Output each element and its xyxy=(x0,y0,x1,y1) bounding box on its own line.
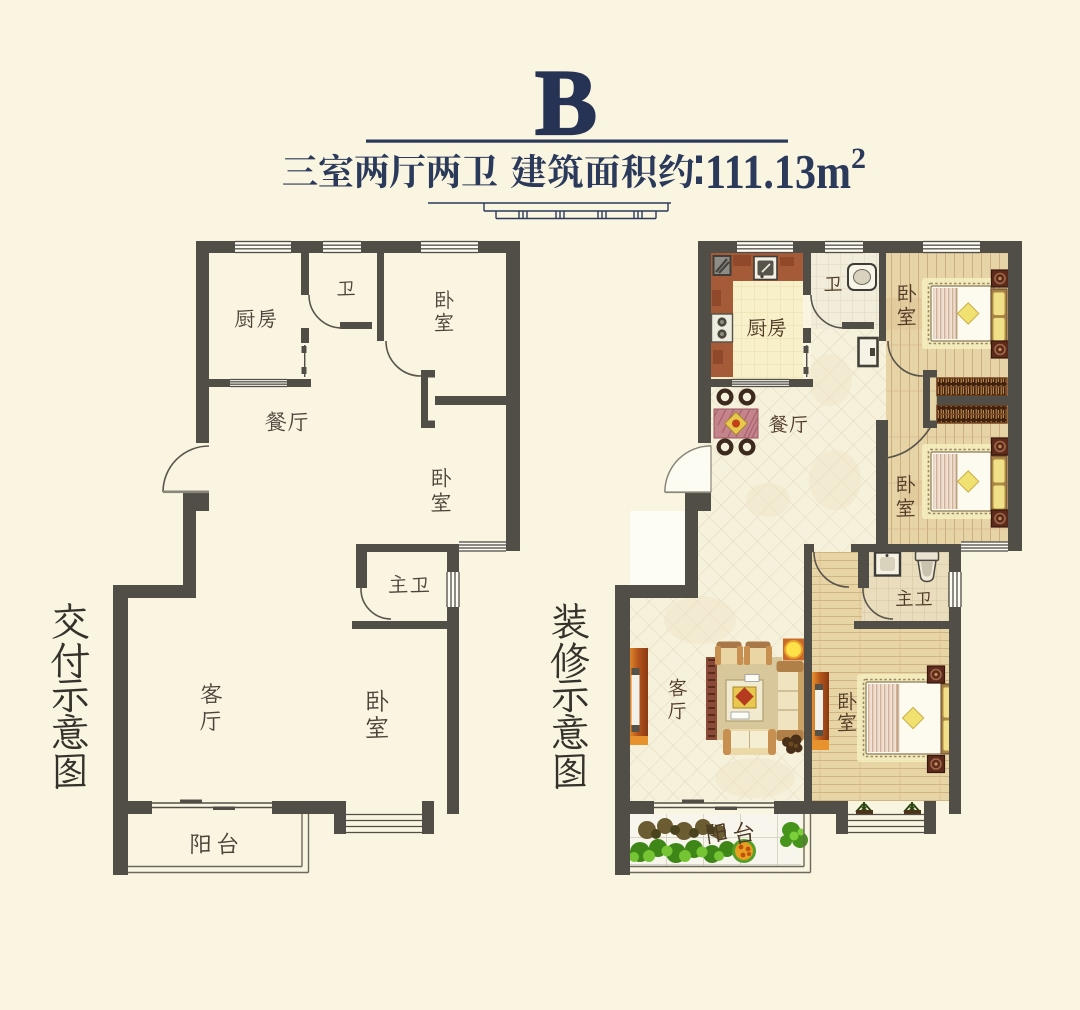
svg-text:111.13m: 111.13m xyxy=(705,144,851,199)
svg-text:2: 2 xyxy=(851,142,866,175)
